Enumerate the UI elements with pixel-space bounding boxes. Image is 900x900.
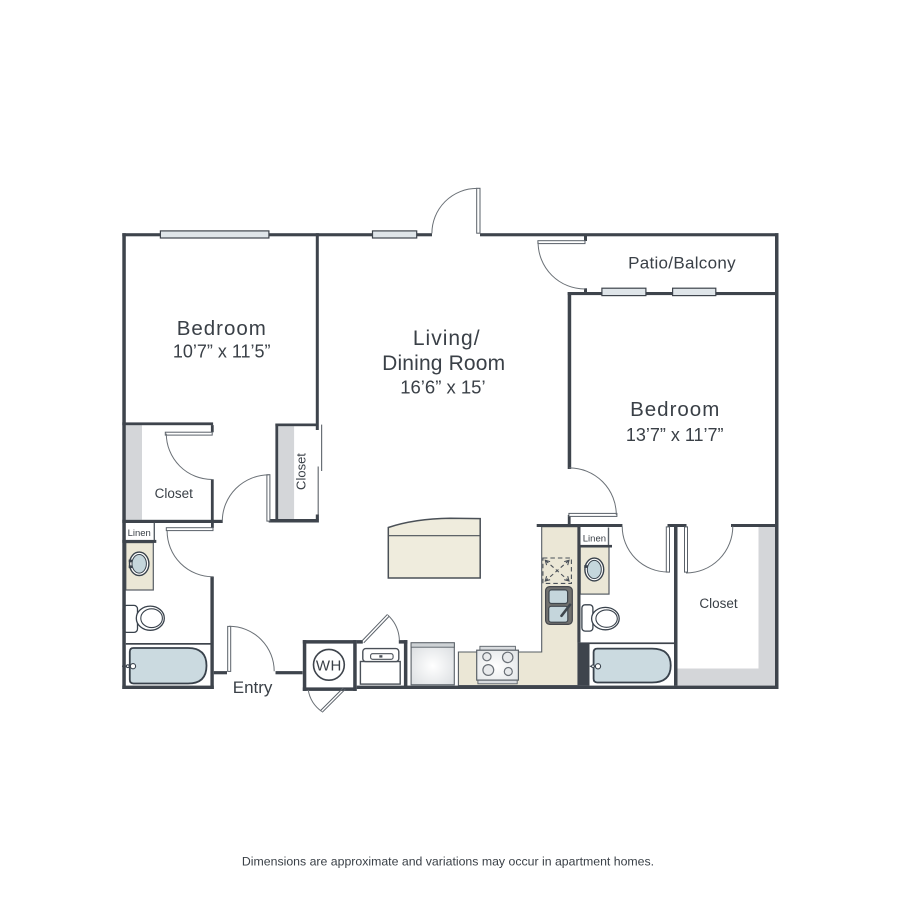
- svg-text:Entry: Entry: [233, 678, 273, 697]
- svg-text:Closet: Closet: [294, 453, 309, 490]
- svg-text:WH: WH: [316, 657, 342, 674]
- svg-text:13’7” x 11’7”: 13’7” x 11’7”: [626, 425, 724, 445]
- svg-text:Bedroom: Bedroom: [177, 317, 267, 340]
- svg-text:16’6” x 15’: 16’6” x 15’: [400, 377, 485, 398]
- svg-text:Dining Room: Dining Room: [382, 352, 505, 375]
- svg-text:Linen: Linen: [583, 533, 606, 544]
- svg-text:Closet: Closet: [155, 486, 194, 501]
- svg-text:Linen: Linen: [128, 528, 151, 539]
- svg-text:10’7” x 11’5”: 10’7” x 11’5”: [173, 342, 271, 362]
- svg-text:Bedroom: Bedroom: [630, 398, 720, 421]
- svg-text:Dimensions are approximate and: Dimensions are approximate and variation…: [242, 855, 654, 869]
- svg-text:Patio/Balcony: Patio/Balcony: [628, 254, 736, 273]
- svg-text:Closet: Closet: [699, 596, 738, 611]
- svg-text:Living/: Living/: [413, 327, 481, 350]
